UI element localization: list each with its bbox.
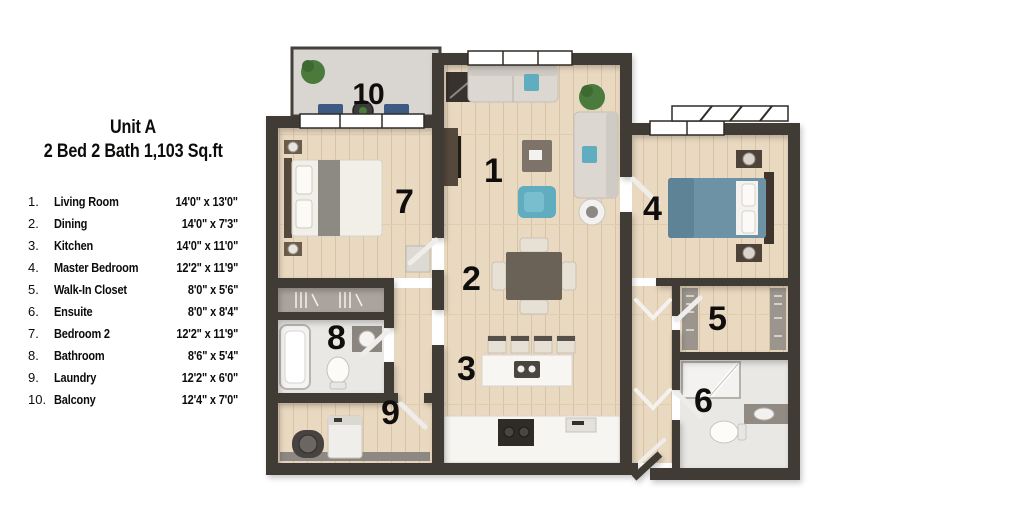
floor-plan: 1 2 3 4 5 6 7 8 9 10	[0, 0, 1024, 512]
hallway-floor	[394, 288, 432, 463]
pillow-teal	[582, 146, 597, 163]
tv-icon	[458, 136, 461, 178]
stool-back	[534, 336, 552, 341]
armchair-cushion	[524, 192, 544, 212]
appliance-slot	[572, 421, 584, 425]
plant-icon	[581, 85, 593, 97]
floor-plan-page: Unit A 2 Bed 2 Bath 1,103 Sq.ft 1.Living…	[0, 0, 1024, 512]
dining-chair	[562, 262, 576, 290]
corridor-floor	[632, 286, 672, 463]
lamp-icon	[288, 142, 298, 152]
sink-bowl	[518, 366, 525, 373]
lamp-icon	[743, 247, 755, 259]
pillow-teal	[524, 74, 539, 91]
bedroom2-closet-floor	[278, 288, 384, 312]
toilet-icon	[710, 421, 738, 443]
burner	[504, 427, 514, 437]
pillow	[742, 211, 755, 233]
lamp-icon	[288, 244, 298, 254]
sink-bowl	[529, 366, 536, 373]
room-label-bathroom: 8	[327, 319, 345, 357]
dining-chair	[520, 300, 548, 314]
dryer-panel	[328, 416, 362, 425]
lamp-icon	[743, 153, 755, 165]
pillow	[296, 166, 312, 194]
room-label-walk-in-closet: 5	[708, 300, 726, 338]
dining-chair	[492, 262, 506, 290]
side-table-center	[586, 206, 598, 218]
stool-back	[511, 336, 529, 341]
stool-back	[557, 336, 575, 341]
closet-shelf	[770, 288, 786, 350]
balcony-door-window	[300, 114, 424, 128]
floor-plan-svg: 1 2 3 4 5 6 7 8 9 10	[0, 0, 1024, 512]
living-room-window	[468, 51, 572, 65]
master-upper-railing-window	[672, 106, 788, 121]
sofa-chaise-back	[606, 112, 618, 198]
closet-shelf	[682, 288, 698, 350]
room-label-laundry: 9	[381, 394, 399, 432]
dining-chair	[520, 238, 548, 252]
dining-table	[506, 252, 562, 300]
toilet-tank	[738, 424, 746, 440]
room-label-bedroom-2: 7	[395, 183, 413, 221]
room-label-kitchen: 3	[457, 350, 475, 388]
pillow	[296, 200, 312, 228]
dryer-display	[334, 418, 342, 422]
bed-runner	[318, 160, 340, 236]
sink-icon	[754, 408, 774, 420]
toilet-icon	[327, 357, 349, 383]
washer-door	[299, 435, 317, 453]
burner	[519, 427, 529, 437]
room-label-master-bedroom: 4	[643, 190, 662, 228]
room-label-ensuite: 6	[694, 382, 712, 420]
plant-icon	[302, 60, 314, 72]
bed-headboard	[284, 158, 292, 238]
stool-back	[488, 336, 506, 341]
pillow	[742, 184, 755, 206]
room-label-living-room: 1	[484, 152, 502, 190]
bathtub-basin	[285, 331, 305, 383]
room-label-dining: 2	[462, 260, 480, 298]
tv-console	[444, 128, 458, 186]
toilet-tank	[330, 382, 346, 389]
room-label-balcony: 10	[352, 78, 384, 111]
sofa-back	[468, 66, 558, 76]
bed-fold	[668, 178, 694, 238]
coffee-table-book	[529, 150, 542, 160]
master-bedroom-window	[650, 121, 724, 135]
